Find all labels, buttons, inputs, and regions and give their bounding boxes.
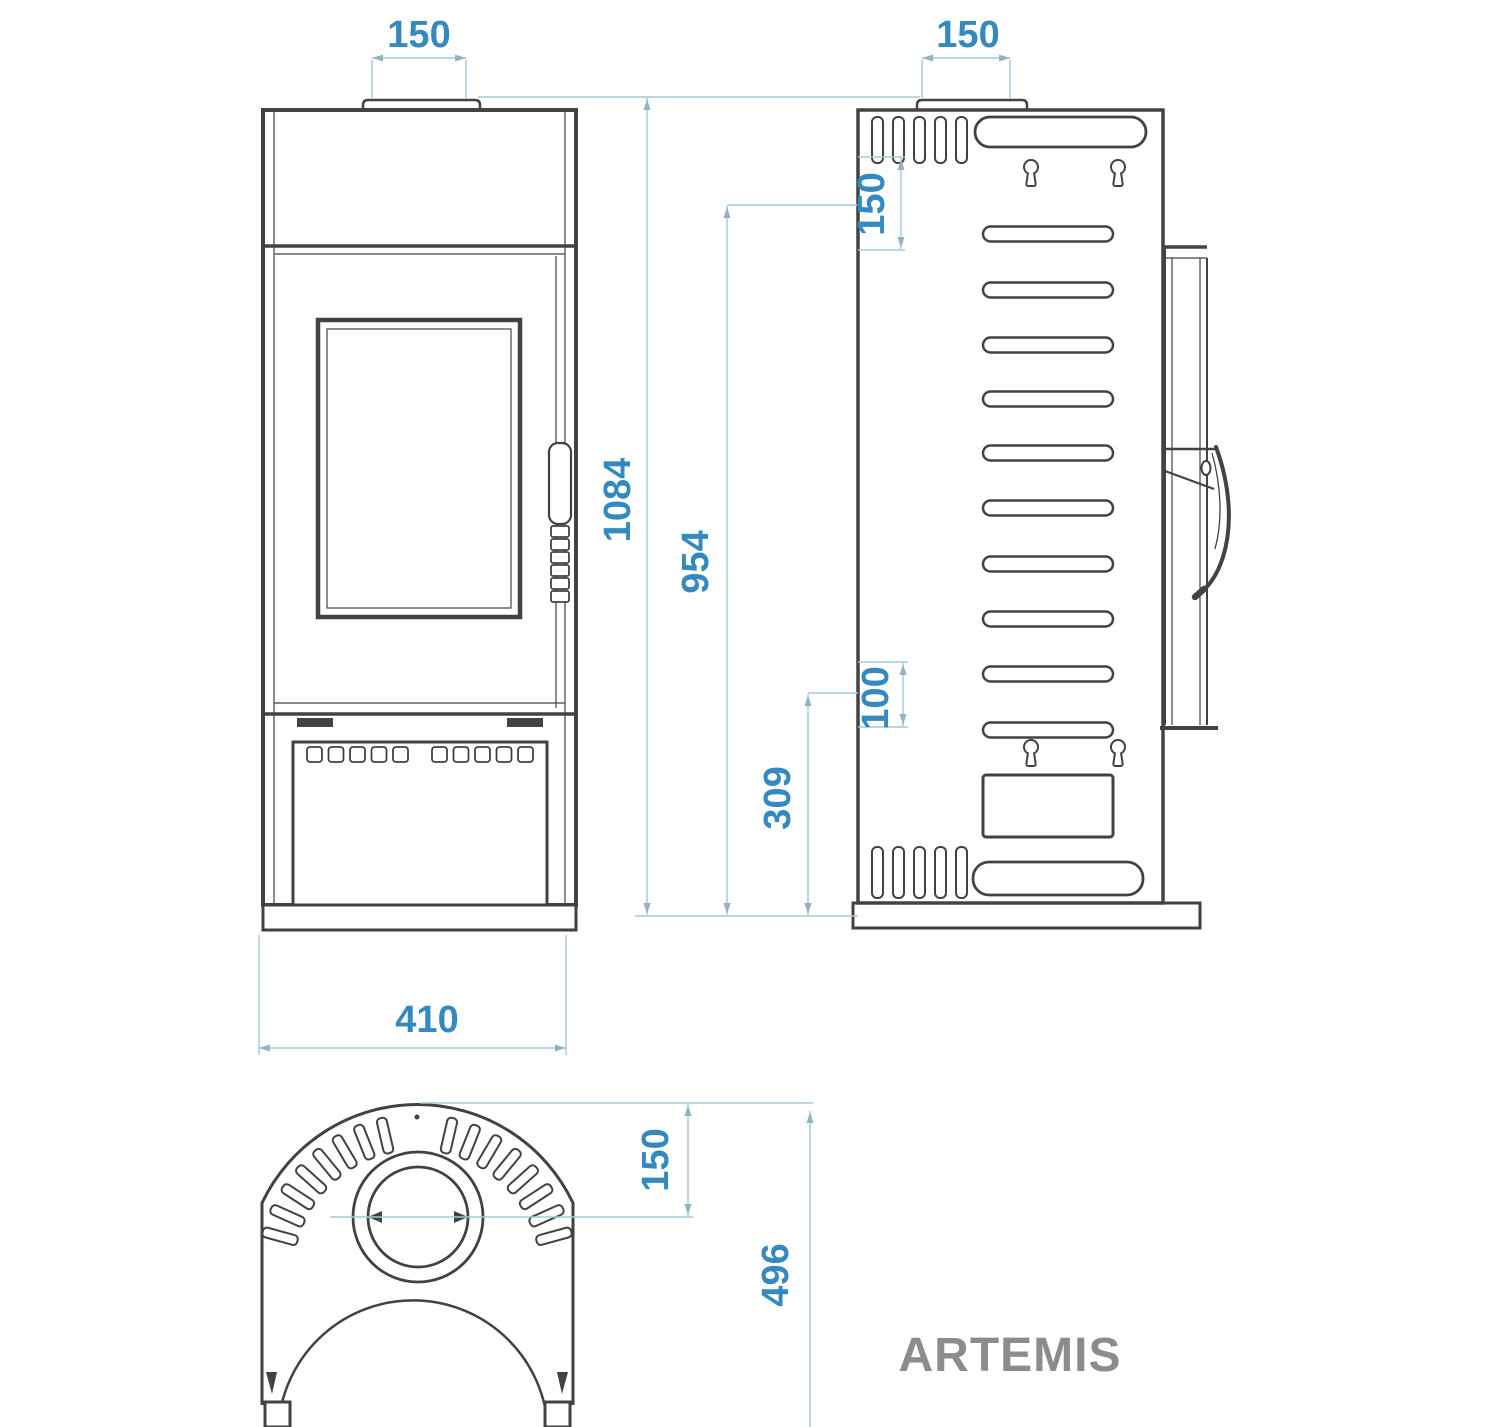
rear-opening: [983, 775, 1113, 837]
rear-vent-slot: [935, 847, 946, 898]
dimension-arrow: [807, 1112, 814, 1123]
rear-top-vent-pill: [975, 117, 1146, 147]
label-rear-flue-offset: 150: [851, 172, 893, 235]
pedestal-vent-slot: [329, 747, 344, 762]
dimension-arrow: [555, 1045, 566, 1052]
label-outlet-height: 309: [757, 766, 799, 829]
top-foot-left: [265, 1402, 290, 1427]
handle-segment: [551, 565, 569, 576]
top-view: [261, 1105, 573, 1427]
dimension-arrow: [372, 55, 383, 62]
rear-louvre-slot: [983, 446, 1113, 461]
door-foot-left: [297, 718, 333, 727]
rear-vent-slot: [914, 117, 925, 163]
label-overall-width: 410: [395, 999, 458, 1041]
label-outlet-size: 100: [855, 666, 897, 729]
rear-louvre-slot: [983, 227, 1113, 242]
pedestal-vent-slot: [350, 747, 365, 762]
front-plinth: [263, 905, 576, 930]
handle-segment: [551, 526, 569, 537]
technical-drawing-page: 150 150 1084 954 309 100 150 410 150 496…: [0, 0, 1500, 1427]
rear-vent-slot: [893, 847, 904, 898]
pedestal-vent-slot: [372, 747, 387, 762]
door-foot-right: [507, 718, 543, 727]
door-handle-grip: [549, 443, 571, 524]
rear-base-plate: [853, 903, 1200, 928]
rear-view: [853, 100, 1229, 928]
dimension-arrow: [685, 1105, 692, 1116]
dimension-arrow: [805, 695, 812, 706]
side-handle-curve-inner: [1212, 453, 1220, 549]
dimension-arrow: [644, 903, 651, 914]
keyhole-mount: [1111, 740, 1125, 766]
pedestal: [293, 742, 547, 905]
rear-louvre-slot: [983, 501, 1113, 516]
pedestal-vent-slot: [497, 747, 512, 762]
dimension-arrow: [259, 1045, 270, 1052]
rear-louvre-slot: [983, 612, 1113, 627]
dimension-arrow: [724, 207, 731, 218]
keyhole-mount: [1024, 740, 1038, 766]
handle-segment: [551, 591, 569, 602]
pedestal-vent-slot: [307, 747, 322, 762]
rear-louvre-slot: [983, 723, 1113, 738]
rear-louvre-slot: [983, 338, 1113, 353]
rear-vent-slot: [935, 117, 946, 163]
dimension-arrow: [922, 55, 933, 62]
pedestal-vent-slot: [518, 747, 533, 762]
rear-louvre-slot: [983, 392, 1113, 407]
product-title: ARTEMIS: [899, 1329, 1122, 1382]
pedestal-vent-slot: [454, 747, 469, 762]
rear-louvre-slot: [983, 557, 1113, 572]
dimension-arrow: [685, 1204, 692, 1215]
rear-vent-slot: [872, 847, 883, 898]
side-handle-tip: [1195, 589, 1204, 597]
rear-louvre-slot: [983, 667, 1113, 682]
keyhole-mount: [1024, 160, 1038, 186]
label-rear-flue-width: 150: [936, 14, 999, 56]
pedestal-vent-slot: [393, 747, 408, 762]
rear-louvre-slot: [983, 283, 1113, 298]
pedestal-vent-slot: [432, 747, 447, 762]
dimension-arrow: [999, 55, 1010, 62]
front-view: [263, 100, 576, 930]
rear-vent-slot: [893, 117, 904, 163]
dimension-arrow: [644, 99, 651, 110]
dimension-arrow: [455, 55, 466, 62]
rear-vent-slot: [956, 847, 967, 898]
top-foot-right: [545, 1402, 570, 1427]
stove-dimension-drawing: 150 150 1084 954 309 100 150 410 150 496…: [0, 0, 1500, 1427]
keyhole-mount: [1111, 160, 1125, 186]
label-overall-depth: 496: [755, 1243, 797, 1306]
rear-vent-slot: [914, 847, 925, 898]
label-flue-center-offset: 150: [635, 1128, 677, 1191]
pedestal-vent-slot: [475, 747, 490, 762]
rear-vent-slot: [872, 117, 883, 163]
label-front-flue-width: 150: [387, 14, 450, 56]
handle-segment: [551, 578, 569, 589]
rear-bottom-vent-pill: [973, 862, 1143, 895]
label-body-height: 954: [675, 530, 717, 593]
dimension-arrow: [724, 903, 731, 914]
handle-segment: [551, 539, 569, 550]
handle-segment: [551, 552, 569, 563]
side-door-profile: [1160, 247, 1229, 728]
label-overall-height: 1084: [597, 458, 639, 543]
top-apex-hole: [415, 1115, 420, 1120]
rear-vent-slot: [956, 117, 967, 163]
side-handle-pivot: [1202, 461, 1211, 475]
dimension-arrow: [805, 903, 812, 914]
